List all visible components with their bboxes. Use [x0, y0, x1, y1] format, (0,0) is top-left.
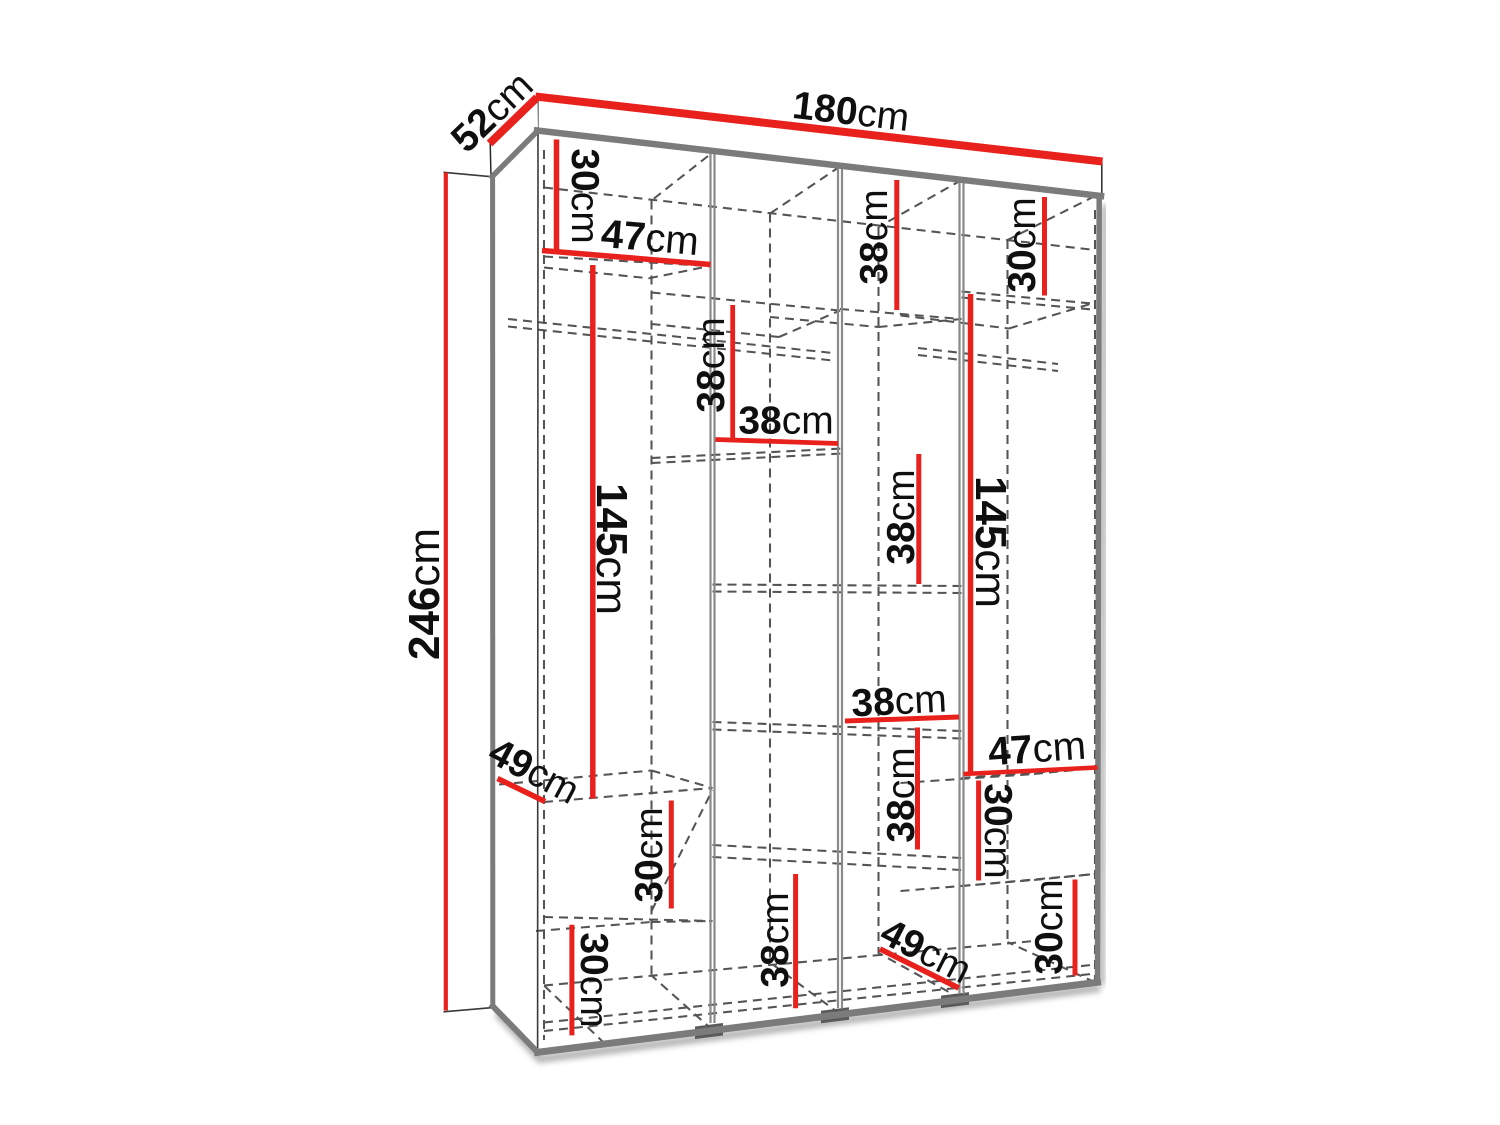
svg-text:38cm: 38cm	[754, 892, 797, 987]
svg-text:38cm: 38cm	[880, 747, 923, 842]
svg-text:30cm: 30cm	[628, 807, 671, 902]
svg-text:30cm: 30cm	[564, 148, 607, 243]
svg-text:30cm: 30cm	[573, 932, 616, 1027]
svg-text:38cm: 38cm	[880, 469, 923, 564]
svg-text:30cm: 30cm	[1001, 197, 1044, 292]
svg-text:38cm: 38cm	[850, 677, 948, 725]
svg-text:30cm: 30cm	[1028, 879, 1071, 974]
svg-text:38cm: 38cm	[738, 399, 833, 442]
svg-text:145cm: 145cm	[967, 476, 1016, 608]
svg-text:30cm: 30cm	[977, 783, 1020, 878]
svg-text:47cm: 47cm	[987, 724, 1088, 775]
svg-text:145cm: 145cm	[588, 483, 637, 615]
svg-text:246cm: 246cm	[400, 528, 449, 660]
svg-text:38cm: 38cm	[853, 189, 896, 284]
svg-text:47cm: 47cm	[599, 212, 700, 264]
svg-text:38cm: 38cm	[690, 317, 733, 412]
